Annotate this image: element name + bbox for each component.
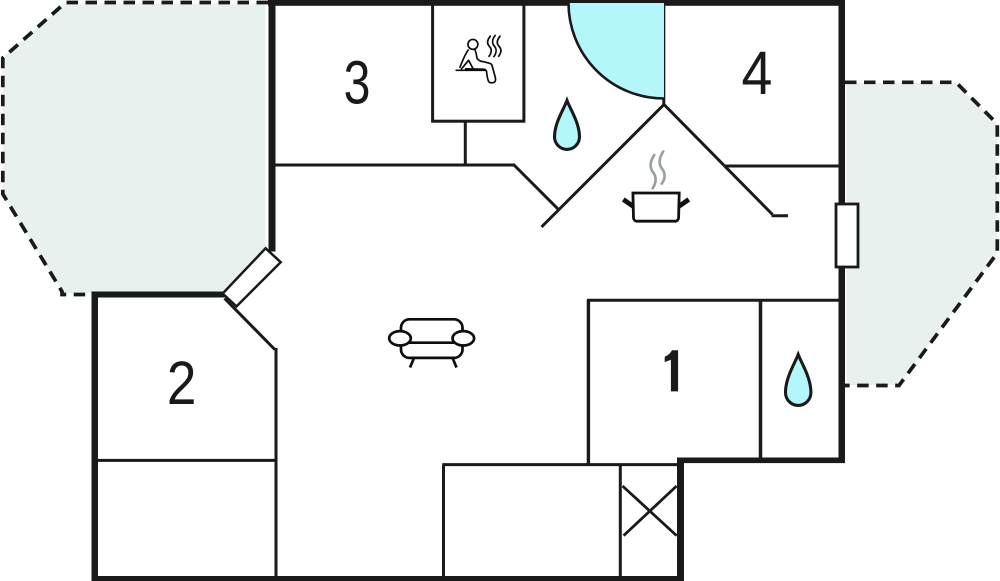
svg-text:2: 2: [167, 350, 197, 418]
svg-text:4: 4: [742, 40, 773, 108]
svg-text:3: 3: [344, 48, 371, 117]
